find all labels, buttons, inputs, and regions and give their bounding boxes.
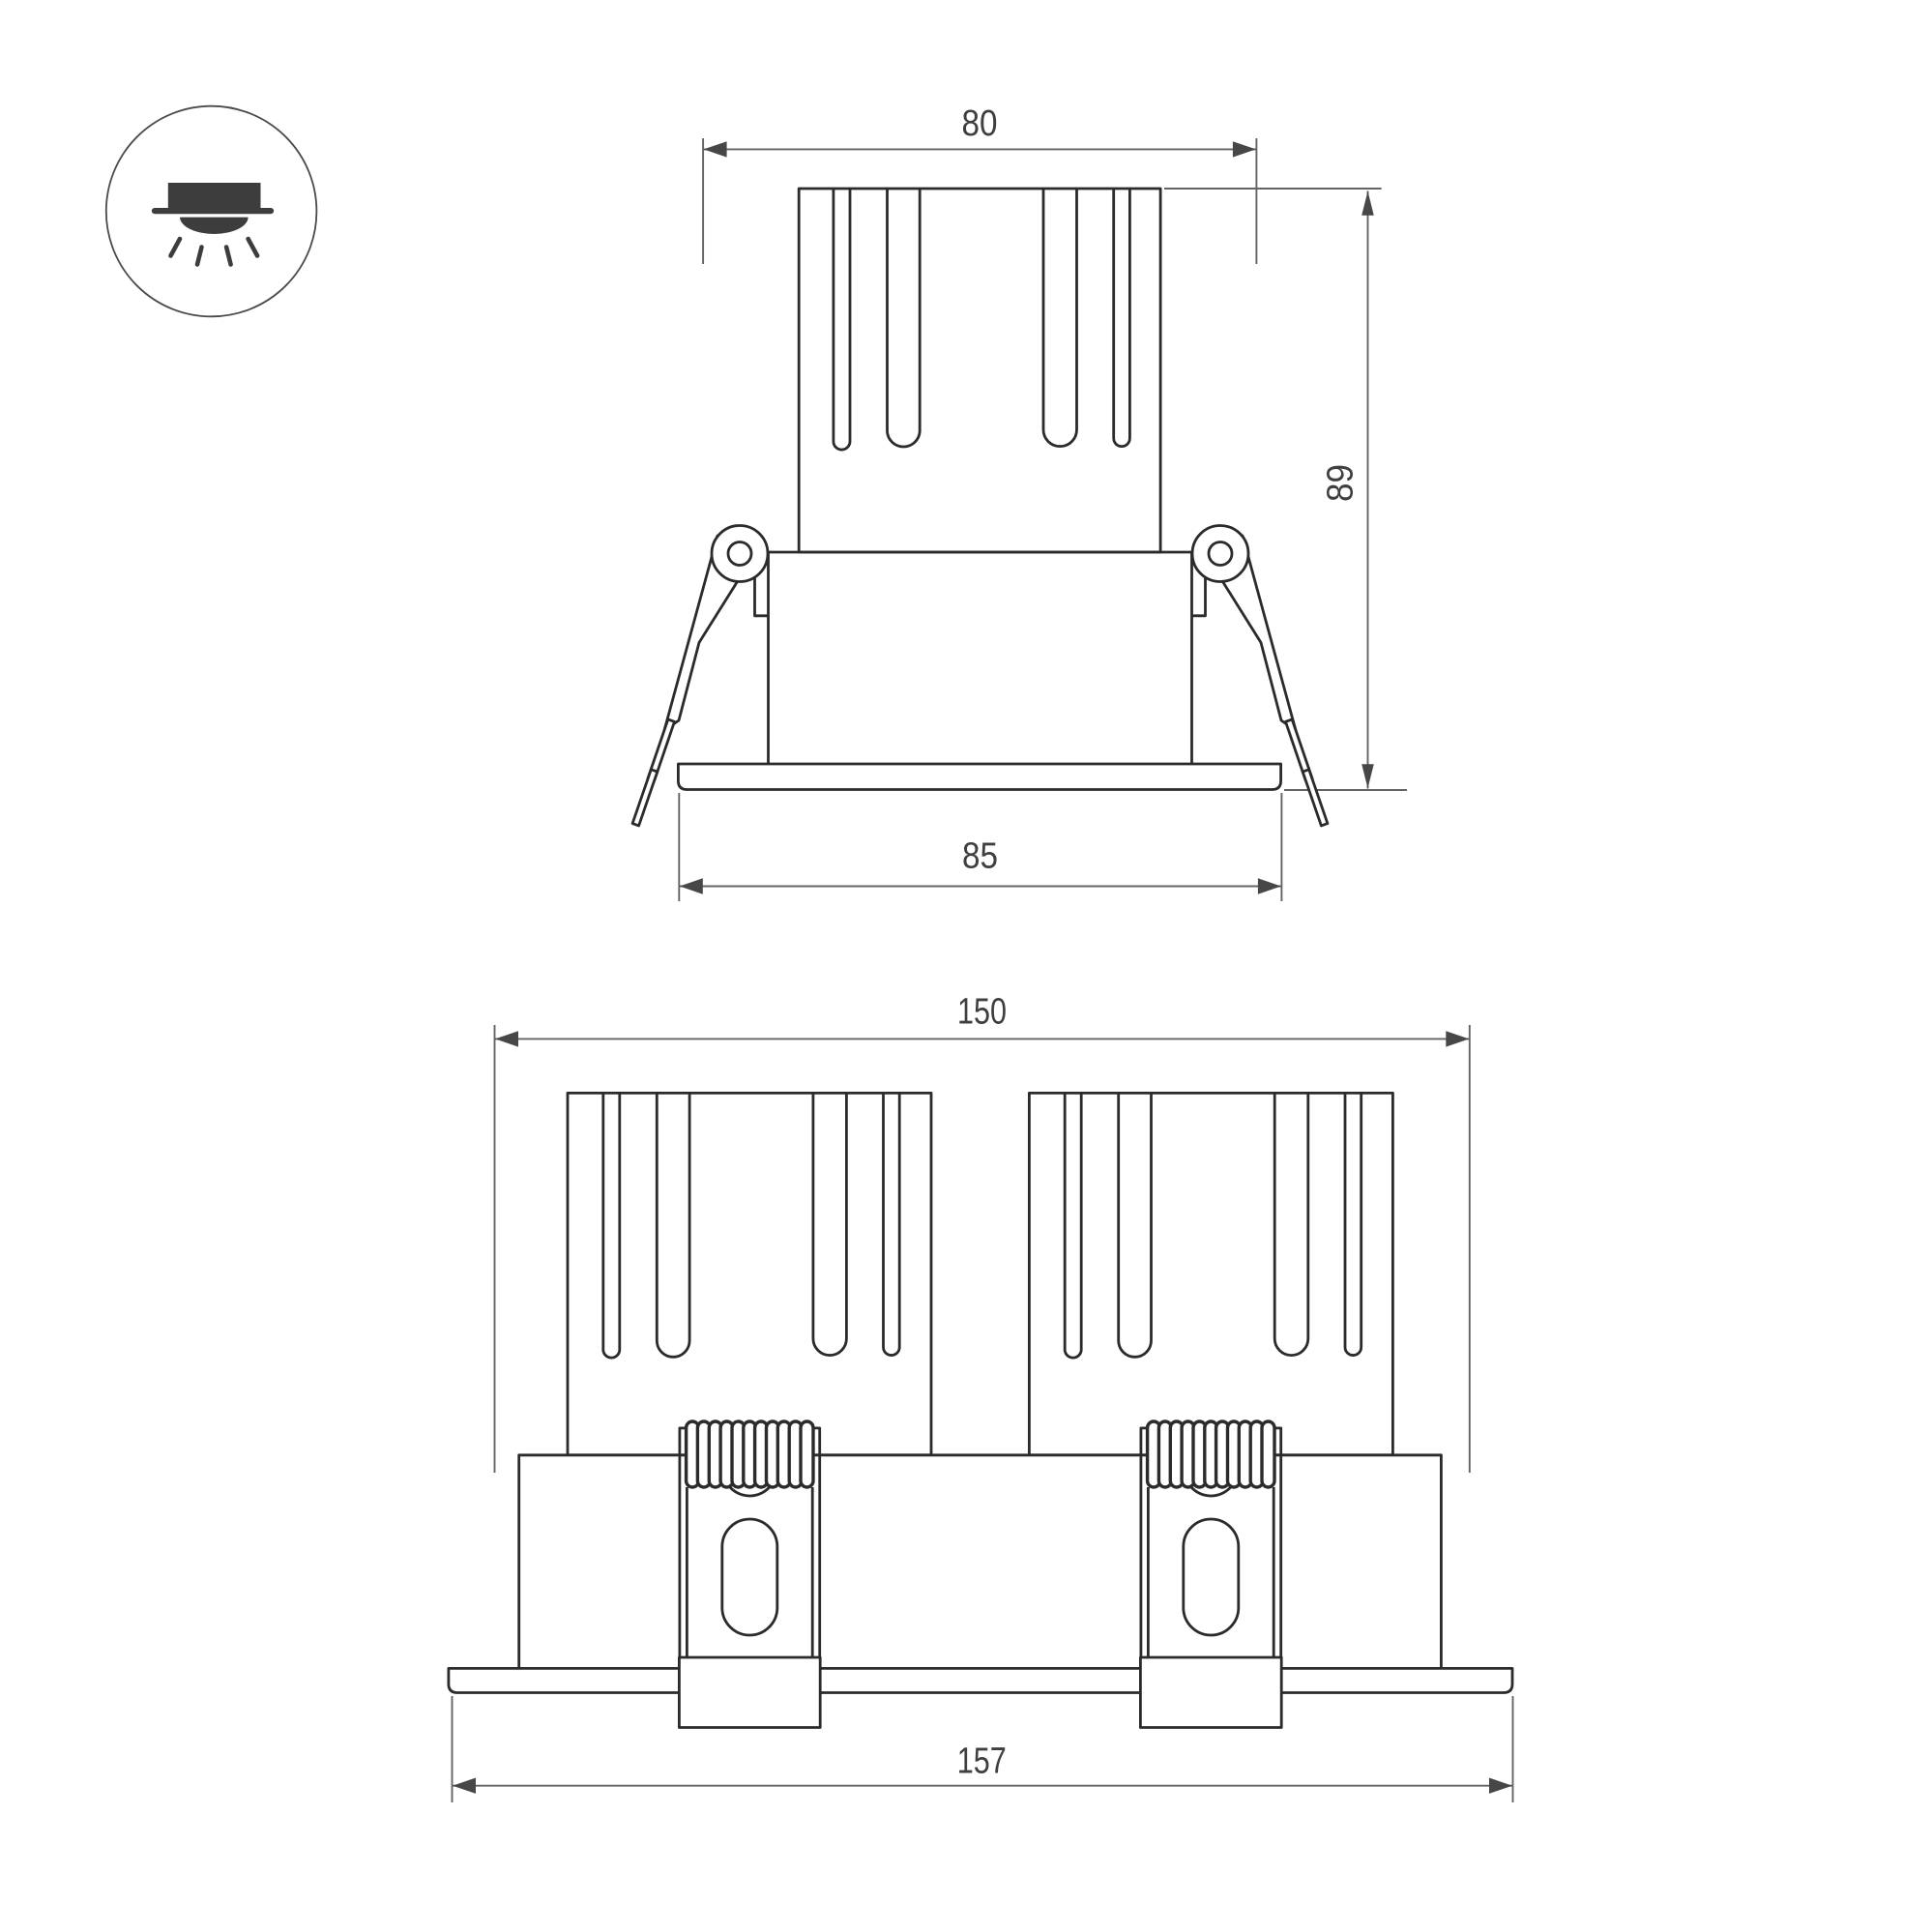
svg-text:150: 150 bbox=[957, 991, 1007, 1032]
svg-text:80: 80 bbox=[962, 103, 998, 144]
svg-text:89: 89 bbox=[1321, 464, 1361, 502]
svg-text:85: 85 bbox=[962, 836, 998, 877]
svg-text:157: 157 bbox=[957, 1741, 1007, 1781]
